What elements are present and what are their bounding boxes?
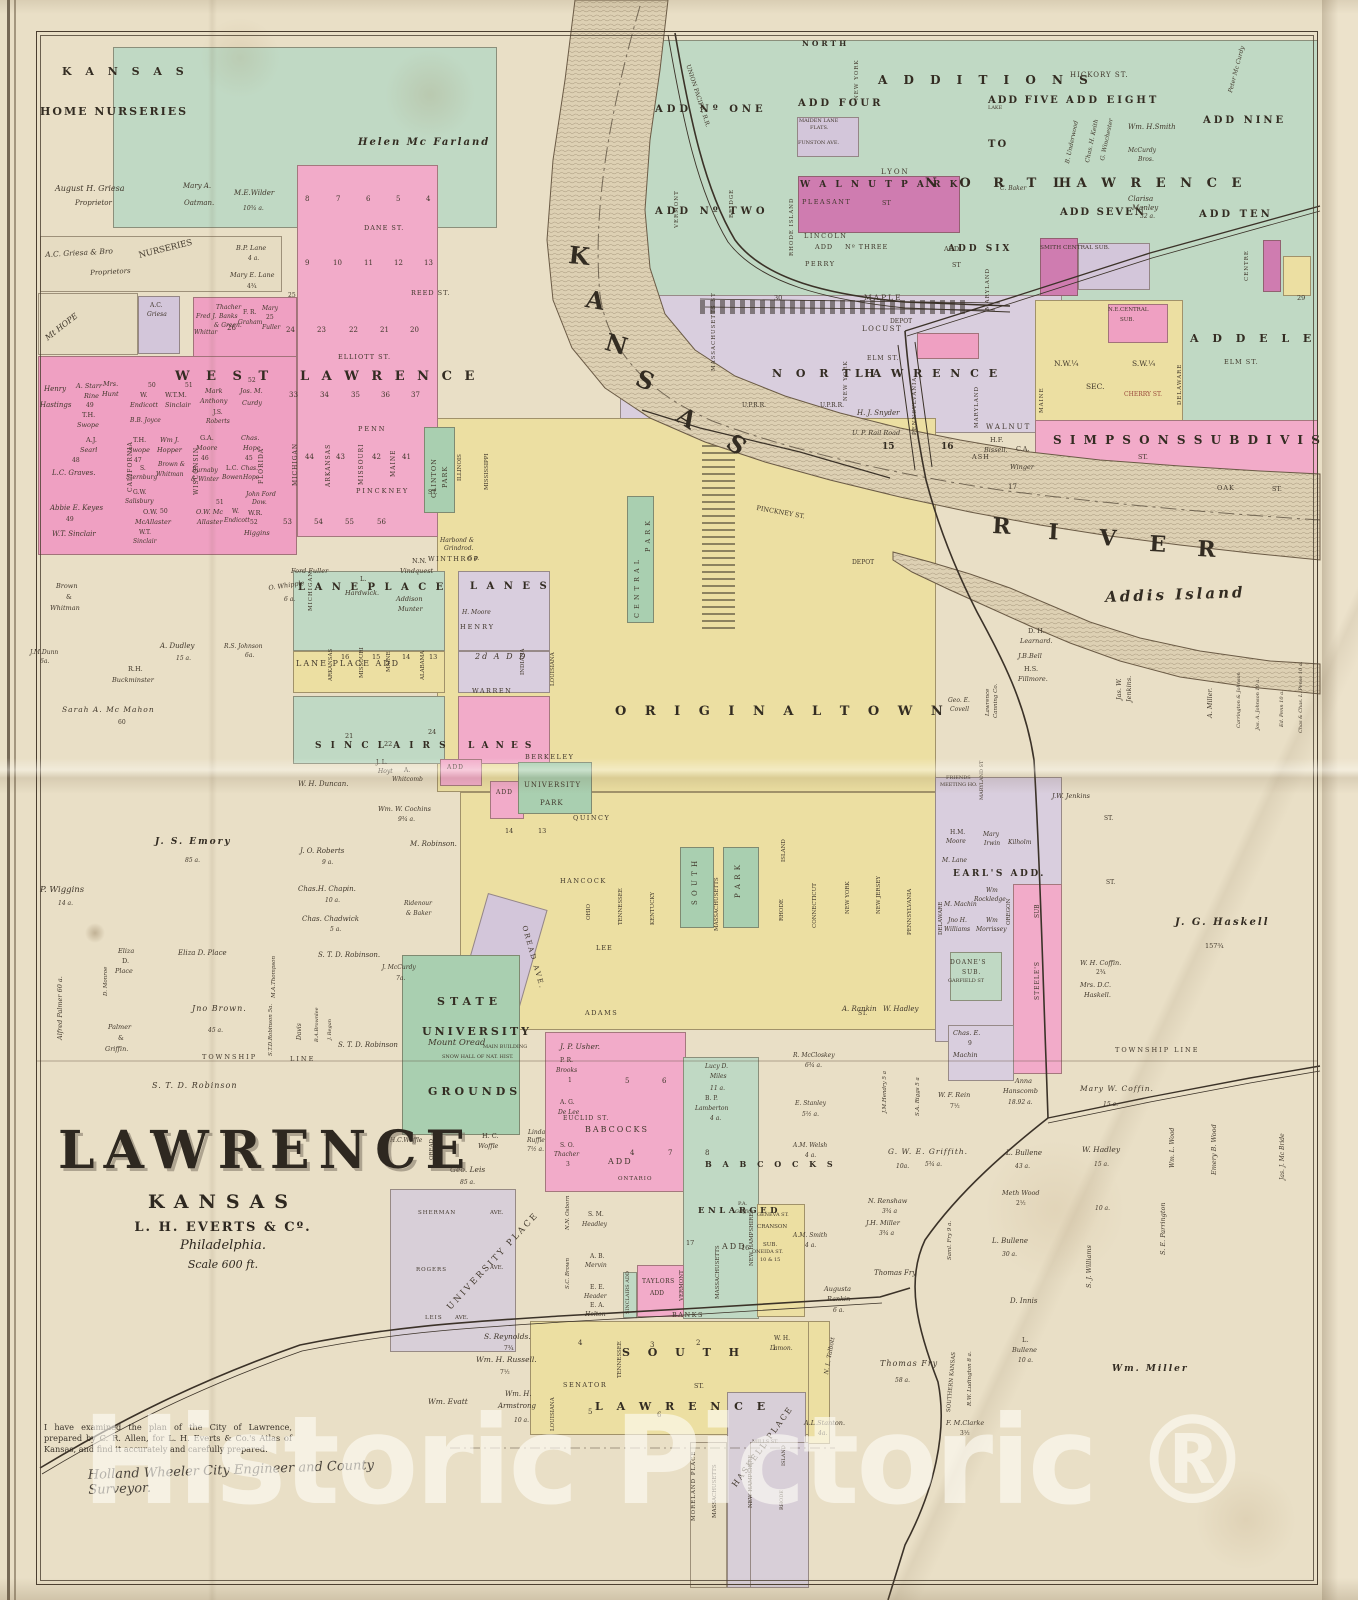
map-label: 6¾ a. — [805, 1063, 822, 1069]
map-label: MAPLE — [864, 294, 903, 302]
map-label: Rankin — [827, 1296, 850, 1303]
map-label: ST. — [1106, 880, 1115, 886]
map-label: Covell — [950, 707, 969, 713]
map-label: P A R K — [645, 520, 652, 552]
map-subtitle: KANSAS — [58, 1191, 388, 1213]
map-label: RHODE — [780, 1490, 785, 1510]
map-label: Holton — [585, 1312, 606, 1318]
map-label: Grindrod. — [444, 546, 474, 552]
map-label: TO — [988, 140, 1008, 150]
map-label: Haskell. — [1084, 992, 1111, 999]
map-label: Whitcomb — [392, 777, 423, 783]
map-label: 21 — [345, 733, 353, 740]
map-label: D. Innis — [1010, 1298, 1037, 1305]
map-label: Wm. Evatt — [428, 1398, 468, 1406]
map-label: 7a. — [396, 976, 405, 982]
map-label: 4 a. — [710, 1116, 721, 1122]
map-label: G. W. E. Griffith. — [888, 1148, 968, 1156]
map-label: 10 a. — [1095, 1206, 1110, 1212]
map-label: Endicott — [224, 518, 250, 524]
map-label: LANE PLACE ADD — [296, 660, 400, 668]
map-label: 4 — [578, 1340, 582, 1347]
map-label: Moore — [946, 839, 966, 845]
map-label: Thomas Fry — [880, 1360, 938, 1368]
map-label: P. Wiggins — [40, 886, 84, 895]
map-label: ELLIOTT ST. — [338, 354, 391, 361]
map-label: LINCOLN — [804, 233, 847, 240]
map-label: 13 — [429, 654, 437, 661]
map-label: Irwin — [984, 841, 1000, 847]
map-label: BRIDGE — [730, 189, 736, 218]
map-label: H. C. — [482, 1133, 499, 1140]
map-label: SNOW HALL OF NAT. HIST. — [442, 1055, 513, 1060]
map-label: Wm. L. Wood — [1170, 1128, 1176, 1168]
map-label: 10a. — [896, 1164, 909, 1170]
map-label: 16 — [941, 443, 954, 452]
map-label: Harbond & — [440, 538, 474, 544]
map-label: S — [722, 430, 750, 460]
map-label: PLEASANT — [802, 199, 851, 206]
map-label: Wm. H.Smith — [1128, 124, 1176, 131]
map-label: D. Monroe — [104, 967, 110, 996]
map-label: McCurdy — [1128, 148, 1156, 154]
map-label: Eliza D. Place — [178, 950, 227, 957]
map-label: Higgins — [244, 530, 270, 537]
map-label: Wm. W. Cochins — [378, 806, 431, 813]
map-label: Hardwick. — [345, 590, 379, 597]
map-label: A.M. Welsh — [793, 1143, 827, 1149]
map-label: 17 — [686, 1240, 694, 1247]
map-label: ONTARIO — [618, 1177, 652, 1183]
map-label: GARFIELD ST — [948, 979, 984, 984]
map-label: 16 — [341, 654, 349, 661]
map-label: Banks — [219, 314, 238, 320]
map-label: SENATOR — [563, 1382, 607, 1389]
map-label: F. M.Clarke — [946, 1420, 984, 1427]
map-label: 14 — [402, 654, 410, 661]
map-label: L A W R E N C E — [300, 370, 478, 383]
map-label: 22 — [384, 741, 392, 748]
map-label: Woffle — [478, 1143, 498, 1150]
map-label: B A B C O C K S — [705, 1160, 837, 1168]
map-label: Mervin — [585, 1263, 607, 1269]
map-label: A. Dudley — [160, 643, 194, 650]
map-label: SUB. — [962, 970, 981, 976]
map-label: FRIENDS — [946, 776, 971, 781]
map-label: Mount Oread — [428, 1039, 485, 1048]
map-label: Addison — [396, 596, 423, 603]
map-label: S. M. — [588, 1212, 604, 1218]
map-label: Hoyt — [378, 769, 393, 775]
map-label: LOUISIANA — [551, 1397, 557, 1431]
map-label: Palmer — [108, 1024, 131, 1031]
map-label: Mt HOPE — [44, 312, 79, 342]
map-label: S O U T H — [622, 1347, 746, 1358]
map-label: ARKANSAS — [326, 444, 332, 487]
map-label: J.W. Jenkins — [1052, 793, 1090, 800]
map-label: ELM ST. — [867, 356, 900, 362]
map-label: 15 a. — [1103, 1102, 1118, 1108]
map-label: 23 — [317, 327, 326, 334]
map-label: LOCUST — [862, 326, 902, 333]
map-label: Eliza — [118, 948, 134, 955]
map-label: CENTRE — [1245, 250, 1251, 281]
map-label: MASSACHUSETTS — [715, 877, 721, 931]
map-label: MORELAND PLACE — [692, 1451, 698, 1521]
map-label: Machin — [953, 1052, 978, 1059]
map-label: SUB — [1035, 904, 1041, 918]
map-label: 52 — [250, 520, 258, 526]
map-label: J. Regan — [328, 1019, 333, 1040]
map-label: 34 — [320, 392, 329, 399]
map-label: 2¾ — [1096, 970, 1106, 976]
map-label: J.M.Hendry 5 a — [883, 1071, 889, 1113]
map-label: Mrs. D.C. — [1080, 982, 1111, 989]
map-label: 8 — [705, 1150, 709, 1157]
map-label: UNIVERSITY — [524, 782, 581, 789]
map-label: N.W.¼ — [1054, 360, 1079, 368]
map-label: STEELE'S — [1035, 961, 1041, 1000]
map-label: SINCLAIRS ADD — [626, 1271, 631, 1314]
map-label: 42 — [372, 454, 381, 461]
map-label: Meth Wood — [1002, 1190, 1040, 1197]
map-label: 50 — [148, 383, 156, 389]
map-label: S — [632, 366, 658, 395]
map-label: Abbie E. Keyes — [50, 505, 103, 512]
map-label: 6a. — [245, 653, 254, 659]
map-label: MAINE — [387, 651, 393, 672]
map-label: STATE — [437, 996, 502, 1007]
map-label: Wm. Miller — [1112, 1365, 1189, 1374]
map-label: W. Hadley — [1082, 1146, 1120, 1154]
map-label: HANCOCK — [560, 878, 607, 885]
map-label: ONEIDA ST. — [752, 1250, 783, 1255]
map-label: M. Lane — [942, 858, 967, 864]
map-label: 4a. — [818, 1431, 827, 1437]
map-label: Bros. — [1138, 157, 1154, 163]
map-label: Proprietor — [75, 200, 112, 207]
map-label: Saml. Fry 9 a. — [948, 1221, 954, 1260]
map-label: UNIVERSITY PLACE — [446, 1211, 541, 1312]
map-label: W. — [140, 392, 148, 399]
map-label: MAIN BUILDING — [483, 1045, 527, 1050]
map-label: B. P. — [705, 1096, 718, 1102]
map-label: PERRY — [805, 261, 836, 268]
map-label: P A R K — [735, 864, 742, 898]
map-label: A — [584, 287, 607, 314]
map-label: H.S. — [1024, 666, 1038, 673]
map-label: S. T. D. Robinson — [152, 1082, 238, 1090]
map-label: 6 — [662, 1078, 666, 1085]
map-label: B.B. Joyce — [130, 418, 161, 424]
map-label: O R I G I N A L T O W N — [615, 705, 950, 718]
map-label: PENNSYLVANIA — [913, 377, 919, 435]
map-label: John Ford — [246, 492, 276, 498]
map-label: Jos. M. — [240, 388, 263, 395]
map-label: Ridenour — [404, 901, 432, 907]
map-label: SUB. — [763, 1243, 777, 1249]
map-label: Mary — [262, 306, 278, 312]
map-label: Wm — [986, 918, 998, 924]
map-label: A. — [404, 768, 410, 774]
map-label: 21 — [380, 327, 389, 334]
map-label: J. S. Emory — [155, 838, 232, 847]
map-label: 41 — [402, 454, 411, 461]
map-label: U.P.R.R. — [820, 403, 844, 409]
map-label: 30 a. — [1002, 1252, 1017, 1258]
map-label: OREAD AVE. — [520, 925, 545, 990]
map-label: A.C. — [150, 303, 163, 309]
map-label: S I M P S O N S S U B D I V I S I O N — [1053, 434, 1358, 446]
map-label: Sinclair — [165, 402, 191, 409]
map-label: TENNESSEE — [618, 1341, 624, 1378]
map-label: 7½ — [500, 1370, 510, 1376]
map-label: S. Reynolds. — [484, 1333, 531, 1341]
map-label: ST — [952, 262, 961, 269]
map-label: 6a. — [40, 659, 49, 665]
map-label: E. E. — [590, 1285, 604, 1291]
map-label: Emery B. Wood — [1211, 1124, 1218, 1175]
map-label: LEE — [596, 945, 613, 952]
map-label: RHODE — [780, 899, 786, 921]
map-label: Header — [584, 1294, 607, 1300]
map-label: W. H. — [774, 1336, 790, 1342]
map-label: Wm. H. Russell. — [476, 1356, 537, 1364]
map-label: 56 — [377, 519, 386, 526]
map-label: 17 — [1008, 484, 1017, 491]
map-label: ISLAND — [782, 839, 788, 862]
map-label: Whitman — [156, 472, 184, 478]
map-label: 53 — [283, 519, 292, 526]
map-label: 5¾ a. — [925, 1162, 942, 1168]
map-label: ELM ST. — [1224, 359, 1259, 366]
map-label: S.A. Riggs 5 a — [916, 1077, 922, 1116]
map-label: Canning Co. — [994, 684, 1000, 718]
map-label: R.W. Ludington 8 a. — [968, 1351, 974, 1406]
map-label: W.T. Sinclair — [52, 531, 96, 538]
map-label: 10 a. — [514, 1418, 529, 1424]
map-label: ST. — [694, 1383, 704, 1390]
map-label: S.C. Brown — [566, 1258, 572, 1289]
map-label: S. O. — [560, 1143, 574, 1149]
map-label: 58 a. — [895, 1378, 910, 1384]
map-label: Manley — [1132, 205, 1158, 212]
map-label: 22 — [349, 327, 358, 334]
map-publisher-city: Philadelphia. — [58, 1238, 388, 1253]
map-label: REED ST. — [411, 290, 451, 297]
map-label: NEW JERSEY — [877, 876, 883, 914]
map-label: 15 — [882, 443, 895, 452]
map-label: Roberts — [206, 419, 230, 425]
map-label: Chas. — [241, 435, 259, 442]
map-label: Fred J. — [196, 314, 216, 320]
map-label: S. E. Parrington — [1160, 1202, 1167, 1255]
map-label: EARL'S ADD. — [953, 870, 1046, 879]
map-label: Morrissey — [976, 927, 1007, 933]
map-label: BABCOCKS — [585, 1126, 649, 1134]
map-label: Place — [115, 968, 133, 975]
page-edge-right — [1322, 0, 1358, 1600]
map-label: J. McCurdy — [382, 965, 416, 971]
map-label: VERMONT — [680, 1270, 686, 1301]
map-label: O.W. Mc — [196, 509, 223, 516]
map-label: S I N C L A I R S — [315, 742, 449, 751]
map-label: A — [672, 403, 701, 433]
map-label: Allaster — [197, 519, 223, 526]
map-label: MASSACHUSETTS ST — [712, 292, 718, 371]
map-label: W. H. Coffin. — [1080, 960, 1121, 967]
map-label: ST — [882, 200, 891, 207]
map-label: 7 — [668, 1150, 672, 1157]
map-label: & — [118, 1035, 124, 1042]
map-label: MARYLAND — [975, 386, 981, 428]
map-label: LYON — [881, 169, 910, 176]
map-label: B. Underwood — [1065, 120, 1080, 164]
map-label: U. P. Rail Road — [852, 430, 900, 437]
map-label: 25 — [288, 293, 296, 299]
map-label: 43 — [336, 454, 345, 461]
map-label: SUB. — [1120, 318, 1134, 324]
map-label: W. Hadley — [883, 1006, 919, 1013]
map-label: I — [1048, 521, 1059, 544]
map-label: L A N E S — [470, 582, 550, 592]
map-label: 4 a. — [805, 1243, 816, 1249]
map-label: J.B.Bell — [1018, 653, 1042, 660]
map-label: N. L. Talbott — [824, 1337, 836, 1375]
map-label: W. — [232, 509, 239, 515]
map-label: Sarah A. Mc Mahon — [62, 706, 155, 714]
map-label: Chas. H. Keith — [1085, 119, 1100, 163]
map-label: 8 — [305, 196, 309, 203]
map-label: Brooks — [556, 1068, 577, 1074]
map-label: N. Renshaw — [868, 1198, 907, 1205]
map-label: 6 a. — [284, 597, 295, 603]
map-label: 9¾ a. — [398, 817, 415, 823]
map-label: RHODE ISLAND — [790, 198, 796, 256]
map-label: Oatman. — [184, 200, 214, 207]
map-label: J.M.Dunn — [30, 650, 58, 656]
map-label: MASSACHUSETTS — [716, 1245, 722, 1299]
map-label: 48 — [72, 458, 80, 464]
map-label: J. G. Haskell — [1175, 918, 1270, 928]
map-label: L.C. — [226, 466, 238, 472]
map-label: N.N. — [412, 558, 427, 565]
map-label: Lamberton — [695, 1106, 728, 1112]
map-label: Wm — [986, 888, 998, 894]
map-label: Chas. E. — [953, 1030, 980, 1037]
map-label: Jas. J. Mc Bride — [1280, 1133, 1286, 1180]
map-label: L A W R E N C E — [1053, 177, 1246, 190]
page-edge-left-outer — [7, 0, 10, 1600]
map-label: PINCKNEY ST. — [756, 505, 806, 520]
map-label: WISCONSIN — [194, 447, 200, 495]
map-label: L. Bullene — [992, 1238, 1028, 1245]
map-label: 50 — [160, 509, 168, 515]
map-label: NEW YORK — [855, 59, 861, 100]
map-label: J. O. Roberts — [300, 848, 344, 855]
map-label: 6 a. — [468, 556, 479, 562]
certification-text: I have examined the plan of the City of … — [44, 1422, 292, 1455]
map-label: 157¾ — [1205, 943, 1224, 950]
map-label: Davis — [297, 1023, 303, 1040]
map-label: Bullene — [1012, 1347, 1037, 1354]
map-label: 6 — [657, 1412, 661, 1419]
map-scan: K A N S A SHOME NURSERIESAugust H. Gries… — [0, 0, 1358, 1600]
map-label: Anna — [1015, 1078, 1032, 1085]
map-label: L. — [1022, 1337, 1028, 1344]
map-label: Munter — [398, 606, 423, 613]
map-label: OHIO — [587, 904, 593, 920]
map-label: Anthony — [200, 398, 227, 405]
map-label: PENN — [358, 426, 387, 433]
map-label: E. A. — [590, 1303, 604, 1309]
map-label: 7 — [336, 196, 340, 203]
map-label: Fuller — [262, 325, 280, 331]
map-label: Vindquest — [400, 568, 433, 575]
map-label: S.W.¼ — [1132, 360, 1155, 368]
map-label: A. G. — [560, 1100, 575, 1106]
map-label: P.A. — [738, 1202, 747, 1207]
map-label: 14 a. — [58, 901, 73, 907]
map-label: A.C. Griesa & Bro — [45, 247, 113, 258]
map-label: S.T.D.Robinson 5a. — [269, 1004, 275, 1056]
map-label: DOANE'S — [950, 960, 986, 966]
map-label: 24 — [428, 729, 436, 736]
map-label: 11 — [364, 260, 373, 267]
map-label: 5 — [396, 196, 400, 203]
map-label: Chas. Chadwick — [302, 916, 359, 923]
map-label: DELAWARE — [1178, 364, 1184, 405]
map-label: M.E.Wilder — [234, 190, 274, 197]
map-label: R. McCloskey — [793, 1053, 835, 1059]
map-label: O.W. — [143, 509, 158, 516]
map-label: Nº THREE — [845, 244, 888, 251]
map-label: Graham — [238, 320, 262, 326]
map-label: EUCLID ST. — [563, 1116, 609, 1122]
map-label: Chas.H. Chapin. — [298, 886, 356, 893]
map-label: Whittar — [194, 330, 217, 336]
map-label: 33 — [289, 392, 298, 399]
map-label: Rockledge — [974, 897, 1006, 903]
map-label: Jas. W. — [1116, 678, 1123, 700]
map-label: Mary W. Coffin. — [1080, 1085, 1154, 1093]
map-label: Peter Mc Curdy — [1228, 46, 1246, 94]
map-label: L. — [360, 576, 366, 583]
map-label: VERMONT — [675, 190, 681, 228]
map-label: Lawrence — [986, 689, 992, 716]
map-label: W.R. — [248, 510, 263, 517]
map-label: ADD — [496, 790, 513, 796]
map-label: 29 — [1297, 295, 1305, 302]
map-label: 44 — [305, 454, 314, 461]
map-label: INDIANA — [521, 649, 527, 675]
map-label: Alfred Palmer 60 a. — [57, 976, 64, 1040]
map-label: PARK — [540, 800, 564, 807]
map-label: Thacher — [554, 1152, 579, 1158]
map-label: ADD — [650, 1291, 664, 1297]
map-label: A.L.Stanton. — [804, 1420, 845, 1427]
map-label: Chas & Chas. L. Pense 10 a. — [1299, 662, 1304, 733]
map-label: PARK — [442, 466, 449, 488]
map-label: LOUISIANA — [551, 652, 557, 686]
map-label: 3¾ a — [879, 1231, 894, 1237]
map-label: & Baker — [406, 911, 431, 917]
map-label: N — [602, 330, 630, 359]
map-label: 13 — [538, 828, 546, 835]
map-label: Brown & — [158, 462, 185, 468]
map-label: 26 — [227, 325, 236, 332]
map-label: Jos. A. Johnson 10 a. — [1256, 678, 1261, 730]
